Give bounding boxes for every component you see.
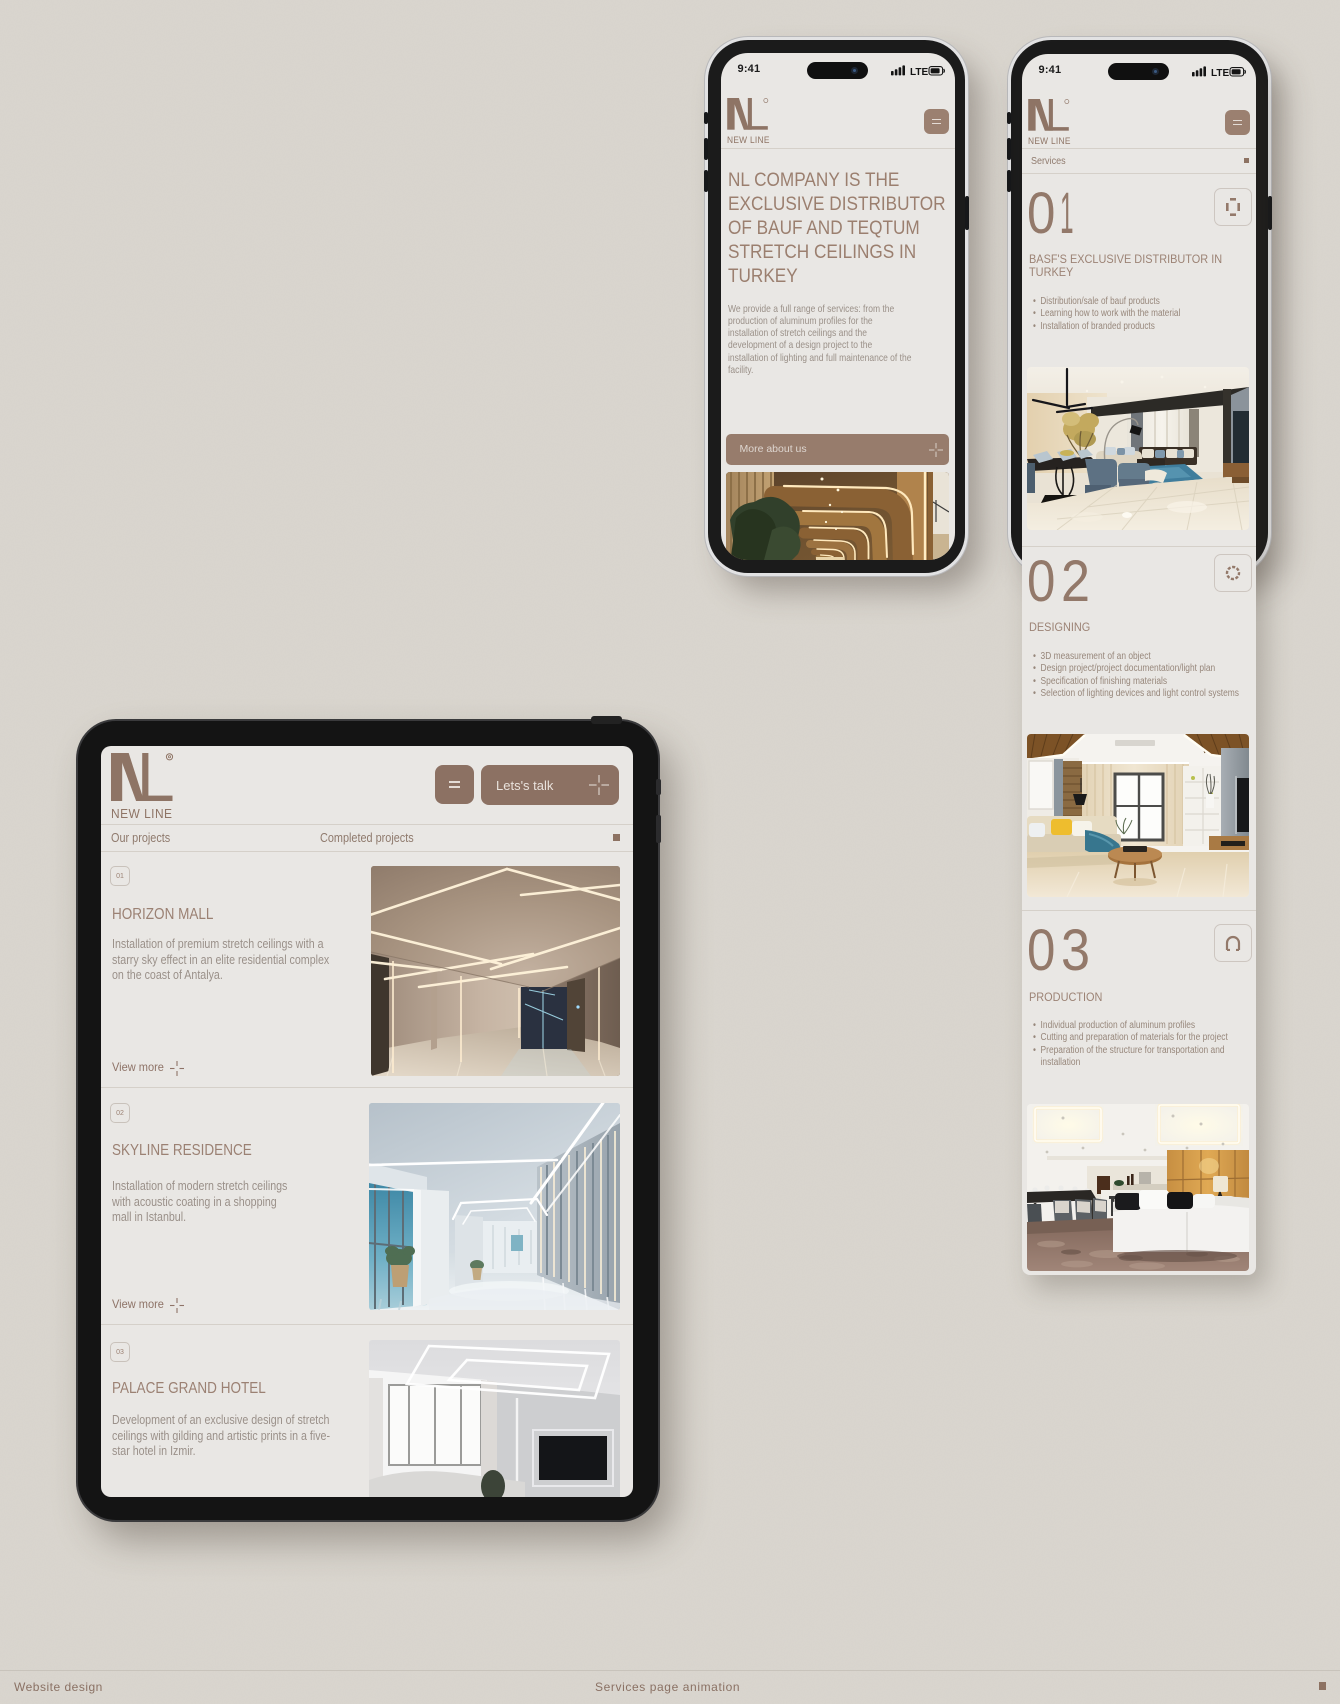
svg-text:LTE: LTE	[910, 67, 928, 78]
svg-text:LTE: LTE	[1211, 68, 1229, 79]
